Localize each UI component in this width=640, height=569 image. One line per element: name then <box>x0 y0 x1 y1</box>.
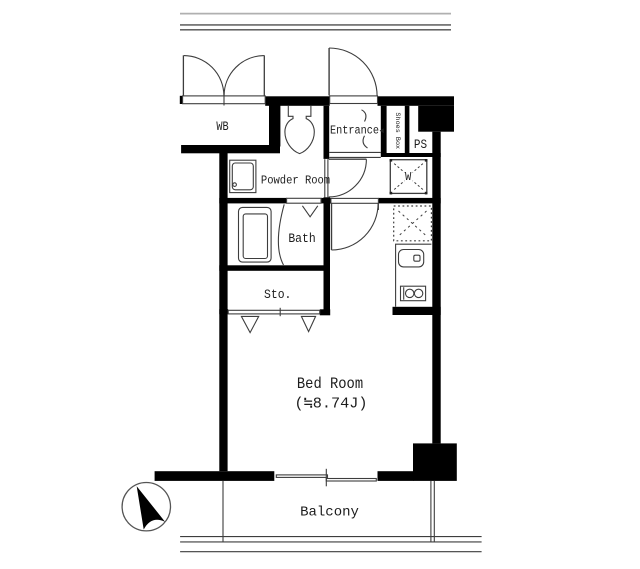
svg-text:PS: PS <box>414 137 427 152</box>
svg-text:WB: WB <box>216 120 228 134</box>
svg-text:(≒8.74J): (≒8.74J) <box>295 395 368 413</box>
svg-text:Entrance: Entrance <box>330 125 379 138</box>
svg-text:Sto.: Sto. <box>264 287 291 302</box>
svg-text:Balcony: Balcony <box>300 505 359 521</box>
svg-text:Bed Room: Bed Room <box>297 376 363 393</box>
svg-text:W: W <box>405 170 411 184</box>
svg-text:Shoes Box: Shoes Box <box>393 112 401 149</box>
svg-text:Powder Room: Powder Room <box>261 174 330 188</box>
svg-text:Bath: Bath <box>288 231 315 246</box>
